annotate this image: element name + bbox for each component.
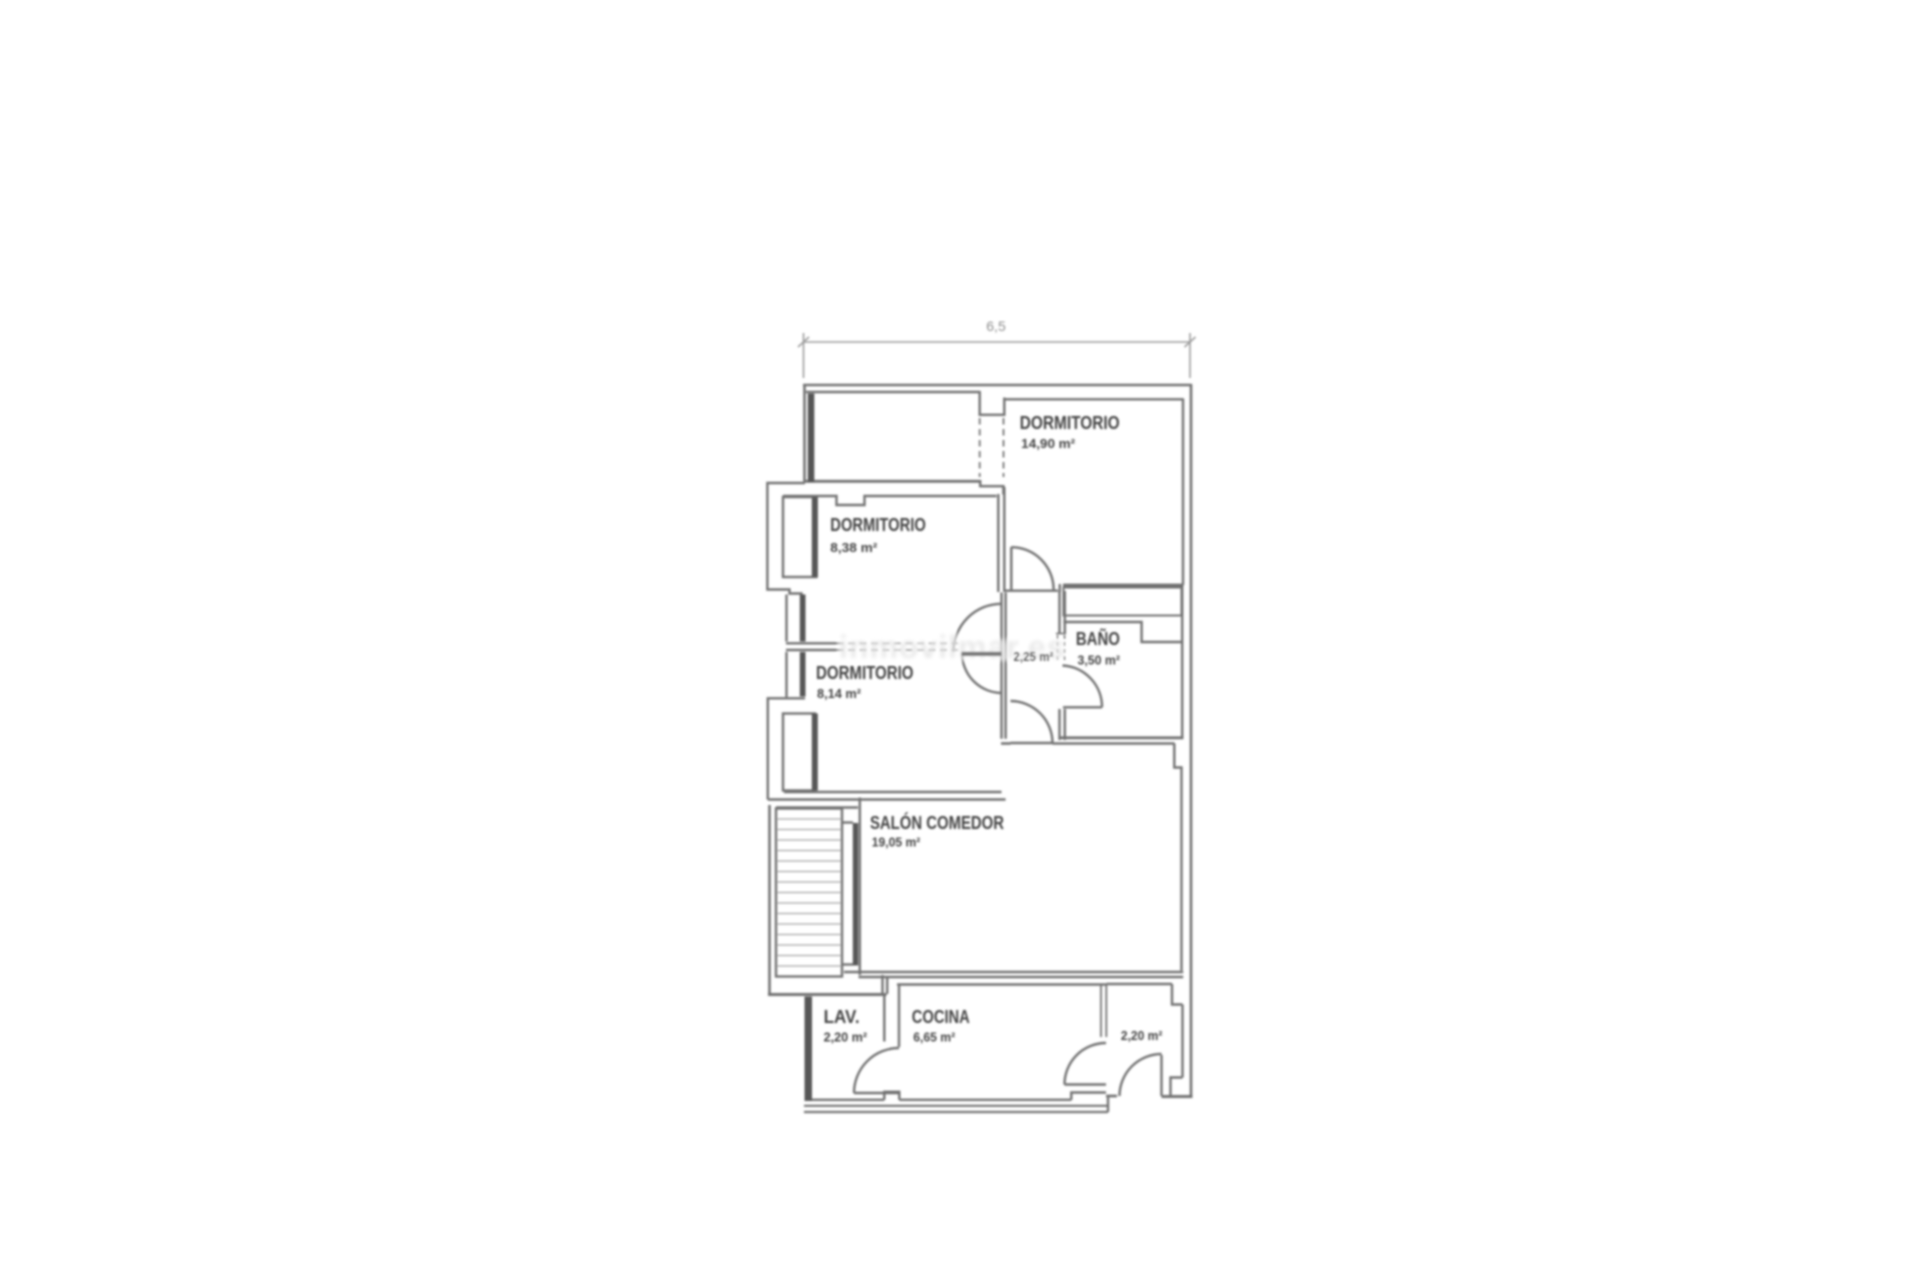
svg-text:DORMITORIO: DORMITORIO: [816, 663, 914, 683]
svg-text:LAV.: LAV.: [824, 1007, 860, 1027]
svg-text:SALÓN COMEDOR: SALÓN COMEDOR: [870, 812, 1004, 833]
svg-text:BAÑO: BAÑO: [1076, 628, 1120, 649]
svg-text:DORMITORIO: DORMITORIO: [1020, 413, 1120, 433]
svg-text:14,90 m²: 14,90 m²: [1021, 436, 1076, 451]
svg-text:6,65 m²: 6,65 m²: [913, 1030, 956, 1045]
svg-text:19,05 m²: 19,05 m²: [872, 835, 921, 850]
svg-text:COCINA: COCINA: [912, 1007, 970, 1027]
svg-text:2,25 m²: 2,25 m²: [1013, 649, 1054, 664]
svg-text:3,50 m²: 3,50 m²: [1078, 653, 1121, 668]
svg-text:8,14 m²: 8,14 m²: [817, 686, 862, 701]
svg-text:2,20 m²: 2,20 m²: [1121, 1028, 1163, 1043]
svg-text:6,5: 6,5: [986, 318, 1006, 334]
svg-text:2,20 m²: 2,20 m²: [824, 1030, 868, 1045]
svg-text:8,38 m²: 8,38 m²: [830, 540, 878, 555]
svg-text:DORMITORIO: DORMITORIO: [830, 515, 926, 535]
